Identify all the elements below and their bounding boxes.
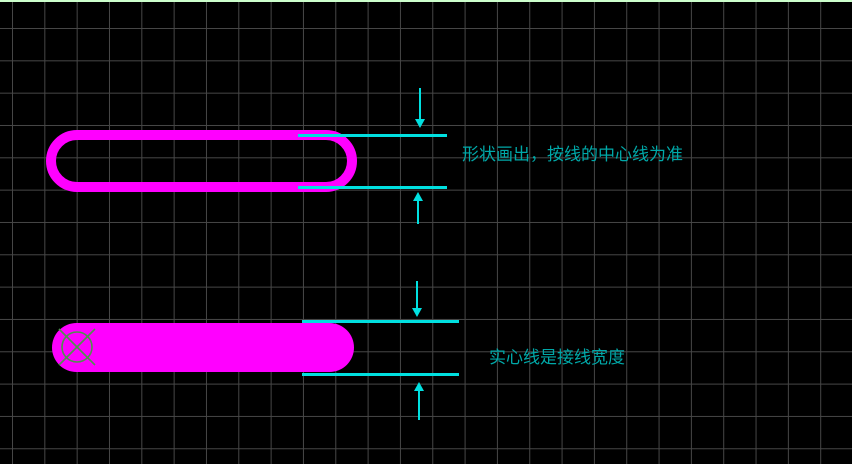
track-solid-shape[interactable] (52, 323, 354, 372)
arrow-shaft (417, 200, 419, 224)
dimension-line-top-centerline[interactable] (298, 134, 447, 137)
track-outline-shape[interactable] (46, 130, 357, 192)
arrow-shaft (416, 281, 418, 309)
annotation-solid-width-note[interactable]: 实心线是接线宽度 (489, 349, 625, 367)
cad-canvas[interactable]: 形状画出，按线的中心线为准 实心线是接线宽度 (0, 0, 852, 464)
dimension-line-bottom-centerline[interactable] (298, 186, 447, 189)
arrow-shaft (419, 88, 421, 120)
arrow-head (415, 119, 425, 128)
circle-cross-origin-icon[interactable] (57, 327, 97, 367)
annotation-centerline-note[interactable]: 形状画出，按线的中心线为准 (462, 146, 683, 164)
canvas-top-border (0, 0, 852, 2)
dimension-line-top-edge[interactable] (302, 320, 459, 323)
arrow-head (414, 382, 424, 391)
arrow-shaft (418, 390, 420, 420)
arrow-head (412, 308, 422, 317)
arrow-head (413, 192, 423, 201)
dimension-line-bottom-edge[interactable] (302, 373, 459, 376)
